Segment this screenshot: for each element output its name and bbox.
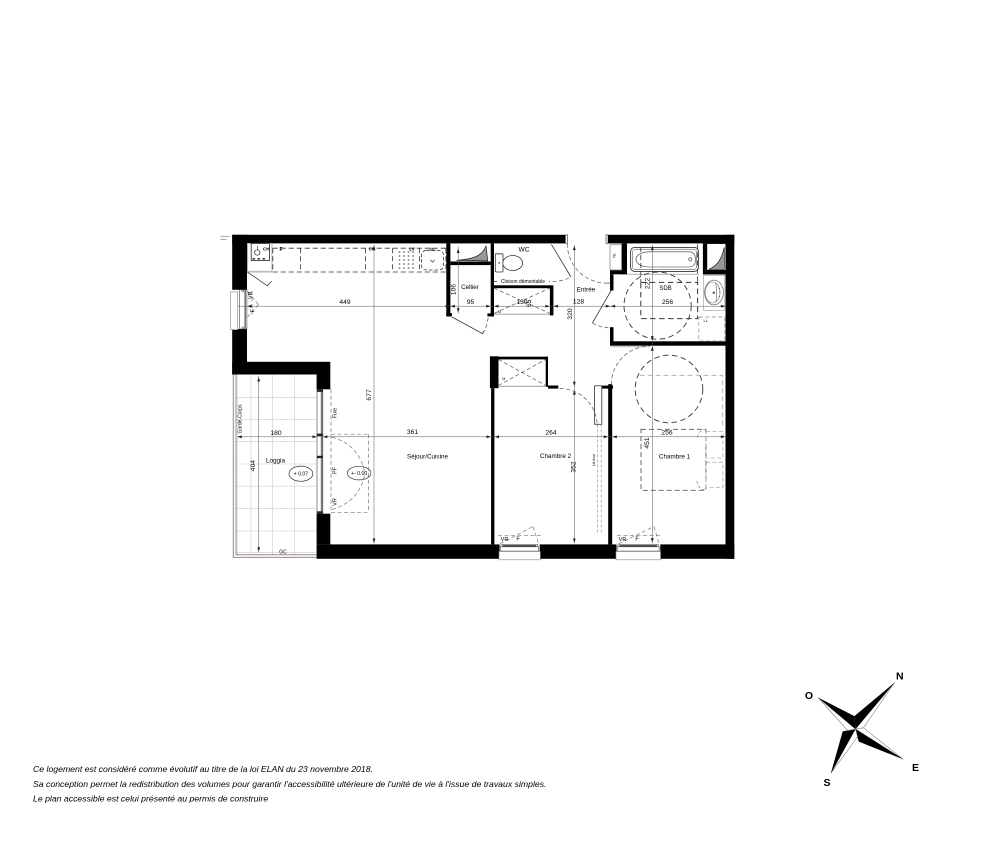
svg-text:GC: GC: [279, 550, 287, 556]
svg-text:451: 451: [644, 437, 651, 448]
svg-text:N: N: [896, 671, 904, 683]
svg-text:+- 0.00: +- 0.00: [351, 471, 367, 477]
svg-text:320: 320: [567, 308, 574, 319]
svg-text:256: 256: [661, 430, 672, 437]
svg-text:+ 0.07: + 0.07: [294, 472, 309, 478]
svg-text:Ce logement est considéré comm: Ce logement est considéré comme évolutif…: [33, 764, 373, 774]
svg-text:VR: VR: [333, 498, 339, 506]
svg-text:SDB: SDB: [659, 286, 671, 292]
svg-text:Lit évol: Lit évol: [592, 454, 596, 466]
svg-text:PF: PF: [333, 466, 339, 474]
svg-text:F: F: [516, 537, 520, 543]
svg-text:F: F: [635, 537, 639, 543]
svg-text:Entrée: Entrée: [577, 287, 596, 294]
svg-text:Le plan accessible est celui p: Le plan accessible est celui présenté au…: [33, 794, 268, 804]
svg-text:Séjour/Cuisine: Séjour/Cuisine: [407, 454, 448, 461]
svg-text:VR: VR: [619, 537, 627, 543]
svg-text:222: 222: [644, 278, 651, 289]
svg-text:256: 256: [662, 299, 673, 306]
svg-text:Garde-Corps: Garde-Corps: [238, 404, 244, 433]
svg-text:128: 128: [573, 299, 584, 306]
svg-text:Chambre 2: Chambre 2: [540, 453, 572, 460]
svg-text:361: 361: [407, 429, 418, 436]
svg-text:Chambre 1: Chambre 1: [659, 454, 691, 461]
svg-text:TE: TE: [612, 253, 617, 258]
svg-text:677: 677: [366, 389, 373, 400]
svg-text:Cloison démontable: Cloison démontable: [501, 279, 545, 285]
svg-text:M: M: [498, 310, 501, 314]
svg-text:Sa conception permet la redist: Sa conception permet la redistribution d…: [33, 779, 546, 789]
svg-text:LV: LV: [409, 247, 415, 252]
svg-text:404: 404: [250, 460, 257, 471]
svg-text:VR: VR: [248, 291, 254, 299]
svg-text:Fixe: Fixe: [333, 408, 339, 418]
svg-text:Cellier: Cellier: [461, 284, 479, 291]
svg-text:LL: LL: [704, 318, 709, 323]
svg-text:VR: VR: [501, 537, 509, 543]
svg-text:264: 264: [545, 430, 556, 437]
svg-text:F: F: [280, 247, 283, 253]
svg-text:M: M: [502, 377, 505, 381]
svg-text:106: 106: [450, 284, 457, 295]
svg-text:F: F: [250, 308, 256, 312]
svg-text:S: S: [823, 777, 830, 789]
svg-text:Loggia: Loggia: [266, 458, 285, 465]
svg-text:180: 180: [270, 430, 281, 437]
svg-text:449: 449: [339, 299, 350, 306]
svg-text:352: 352: [571, 461, 578, 472]
svg-text:WC: WC: [519, 247, 530, 254]
svg-text:95: 95: [467, 299, 475, 306]
svg-text:CH: CH: [263, 247, 270, 252]
svg-text:65: 65: [526, 299, 533, 307]
svg-text:E: E: [912, 762, 919, 774]
svg-text:O: O: [805, 690, 813, 702]
